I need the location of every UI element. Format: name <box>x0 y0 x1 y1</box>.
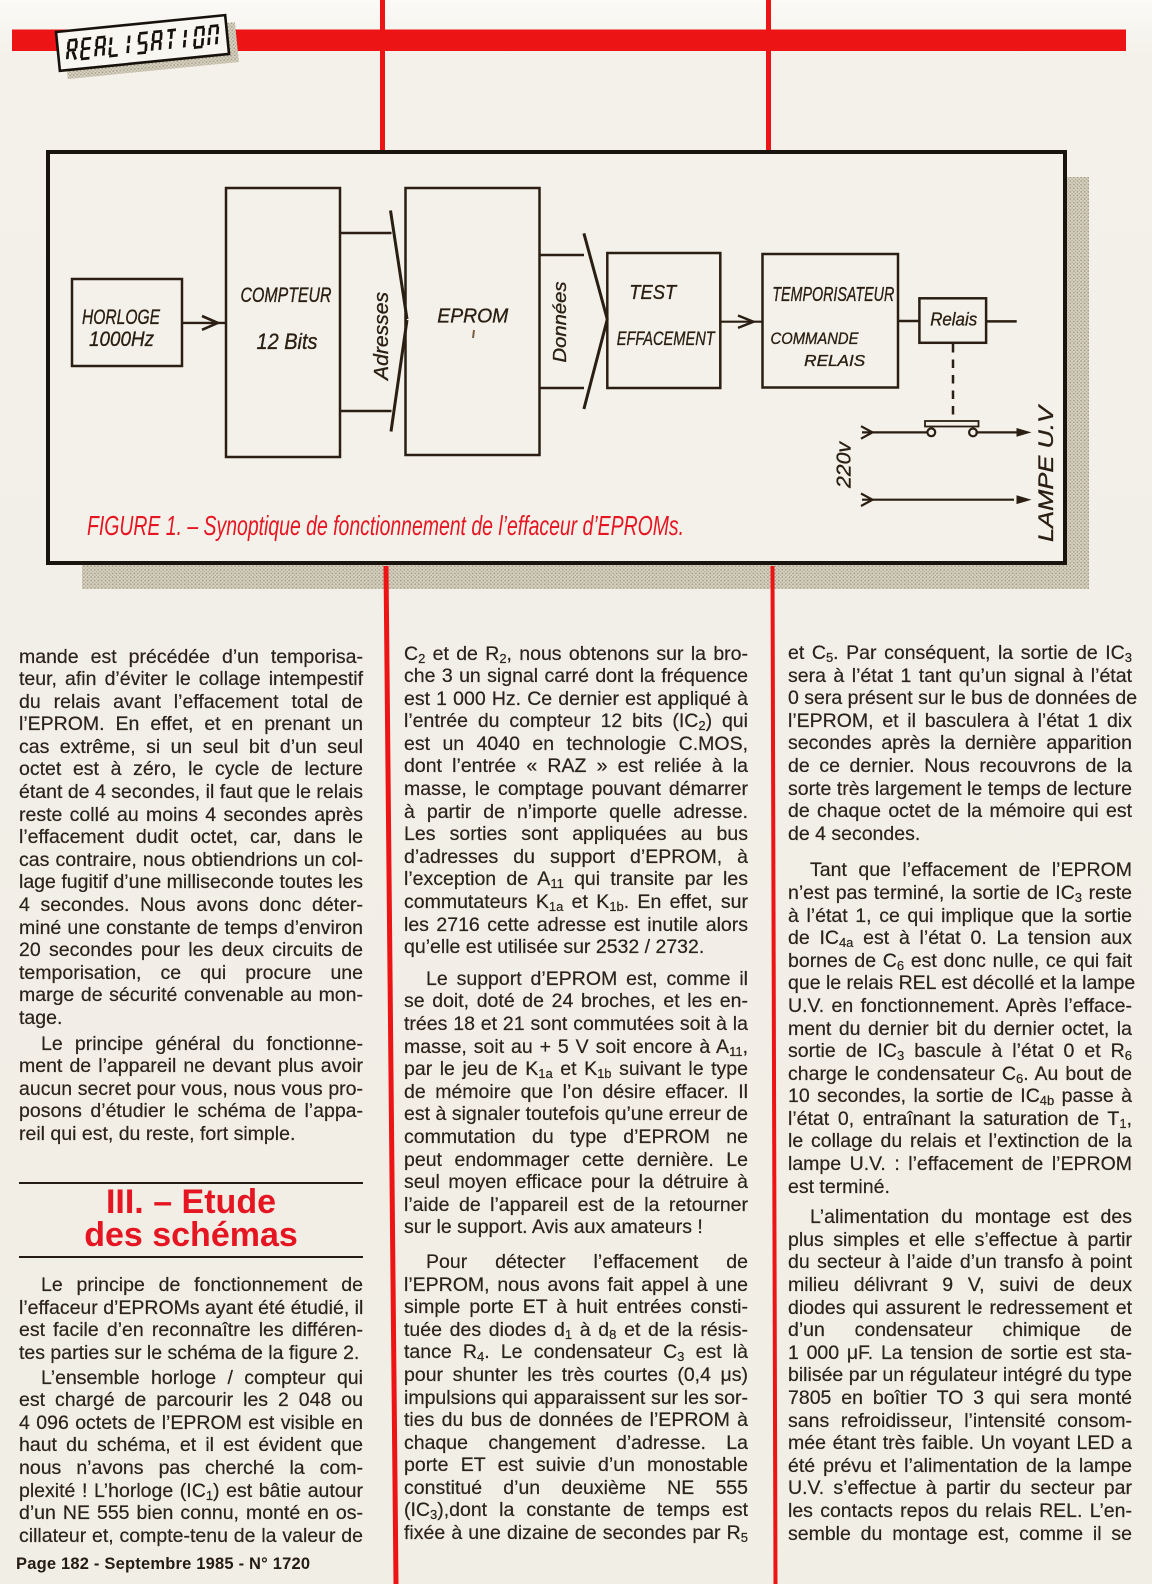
svg-text:12 Bits: 12 Bits <box>257 329 318 354</box>
svg-text:HORLOGE: HORLOGE <box>82 306 161 329</box>
svg-text:LAMPE U.V: LAMPE U.V <box>1035 404 1058 542</box>
svg-text:EFFACEMENT: EFFACEMENT <box>617 329 716 350</box>
svg-text:1000Hz: 1000Hz <box>89 328 154 351</box>
svg-text:220v: 220v <box>834 441 856 489</box>
svg-text:TEMPORISATEUR: TEMPORISATEUR <box>772 284 894 306</box>
svg-text:Relais: Relais <box>930 309 977 330</box>
svg-text:Données: Données <box>550 282 570 363</box>
svg-text:COMPTEUR: COMPTEUR <box>241 283 332 307</box>
svg-text:FIGURE 1. – Synoptique de fonc: FIGURE 1. – Synoptique de fonctionnement… <box>87 510 684 541</box>
svg-text:TEST: TEST <box>629 282 678 304</box>
svg-text:Adresses: Adresses <box>371 292 393 381</box>
svg-text:COMMANDE: COMMANDE <box>771 329 860 348</box>
svg-text:RELAIS: RELAIS <box>804 353 865 370</box>
svg-text:EPROM: EPROM <box>437 306 508 328</box>
